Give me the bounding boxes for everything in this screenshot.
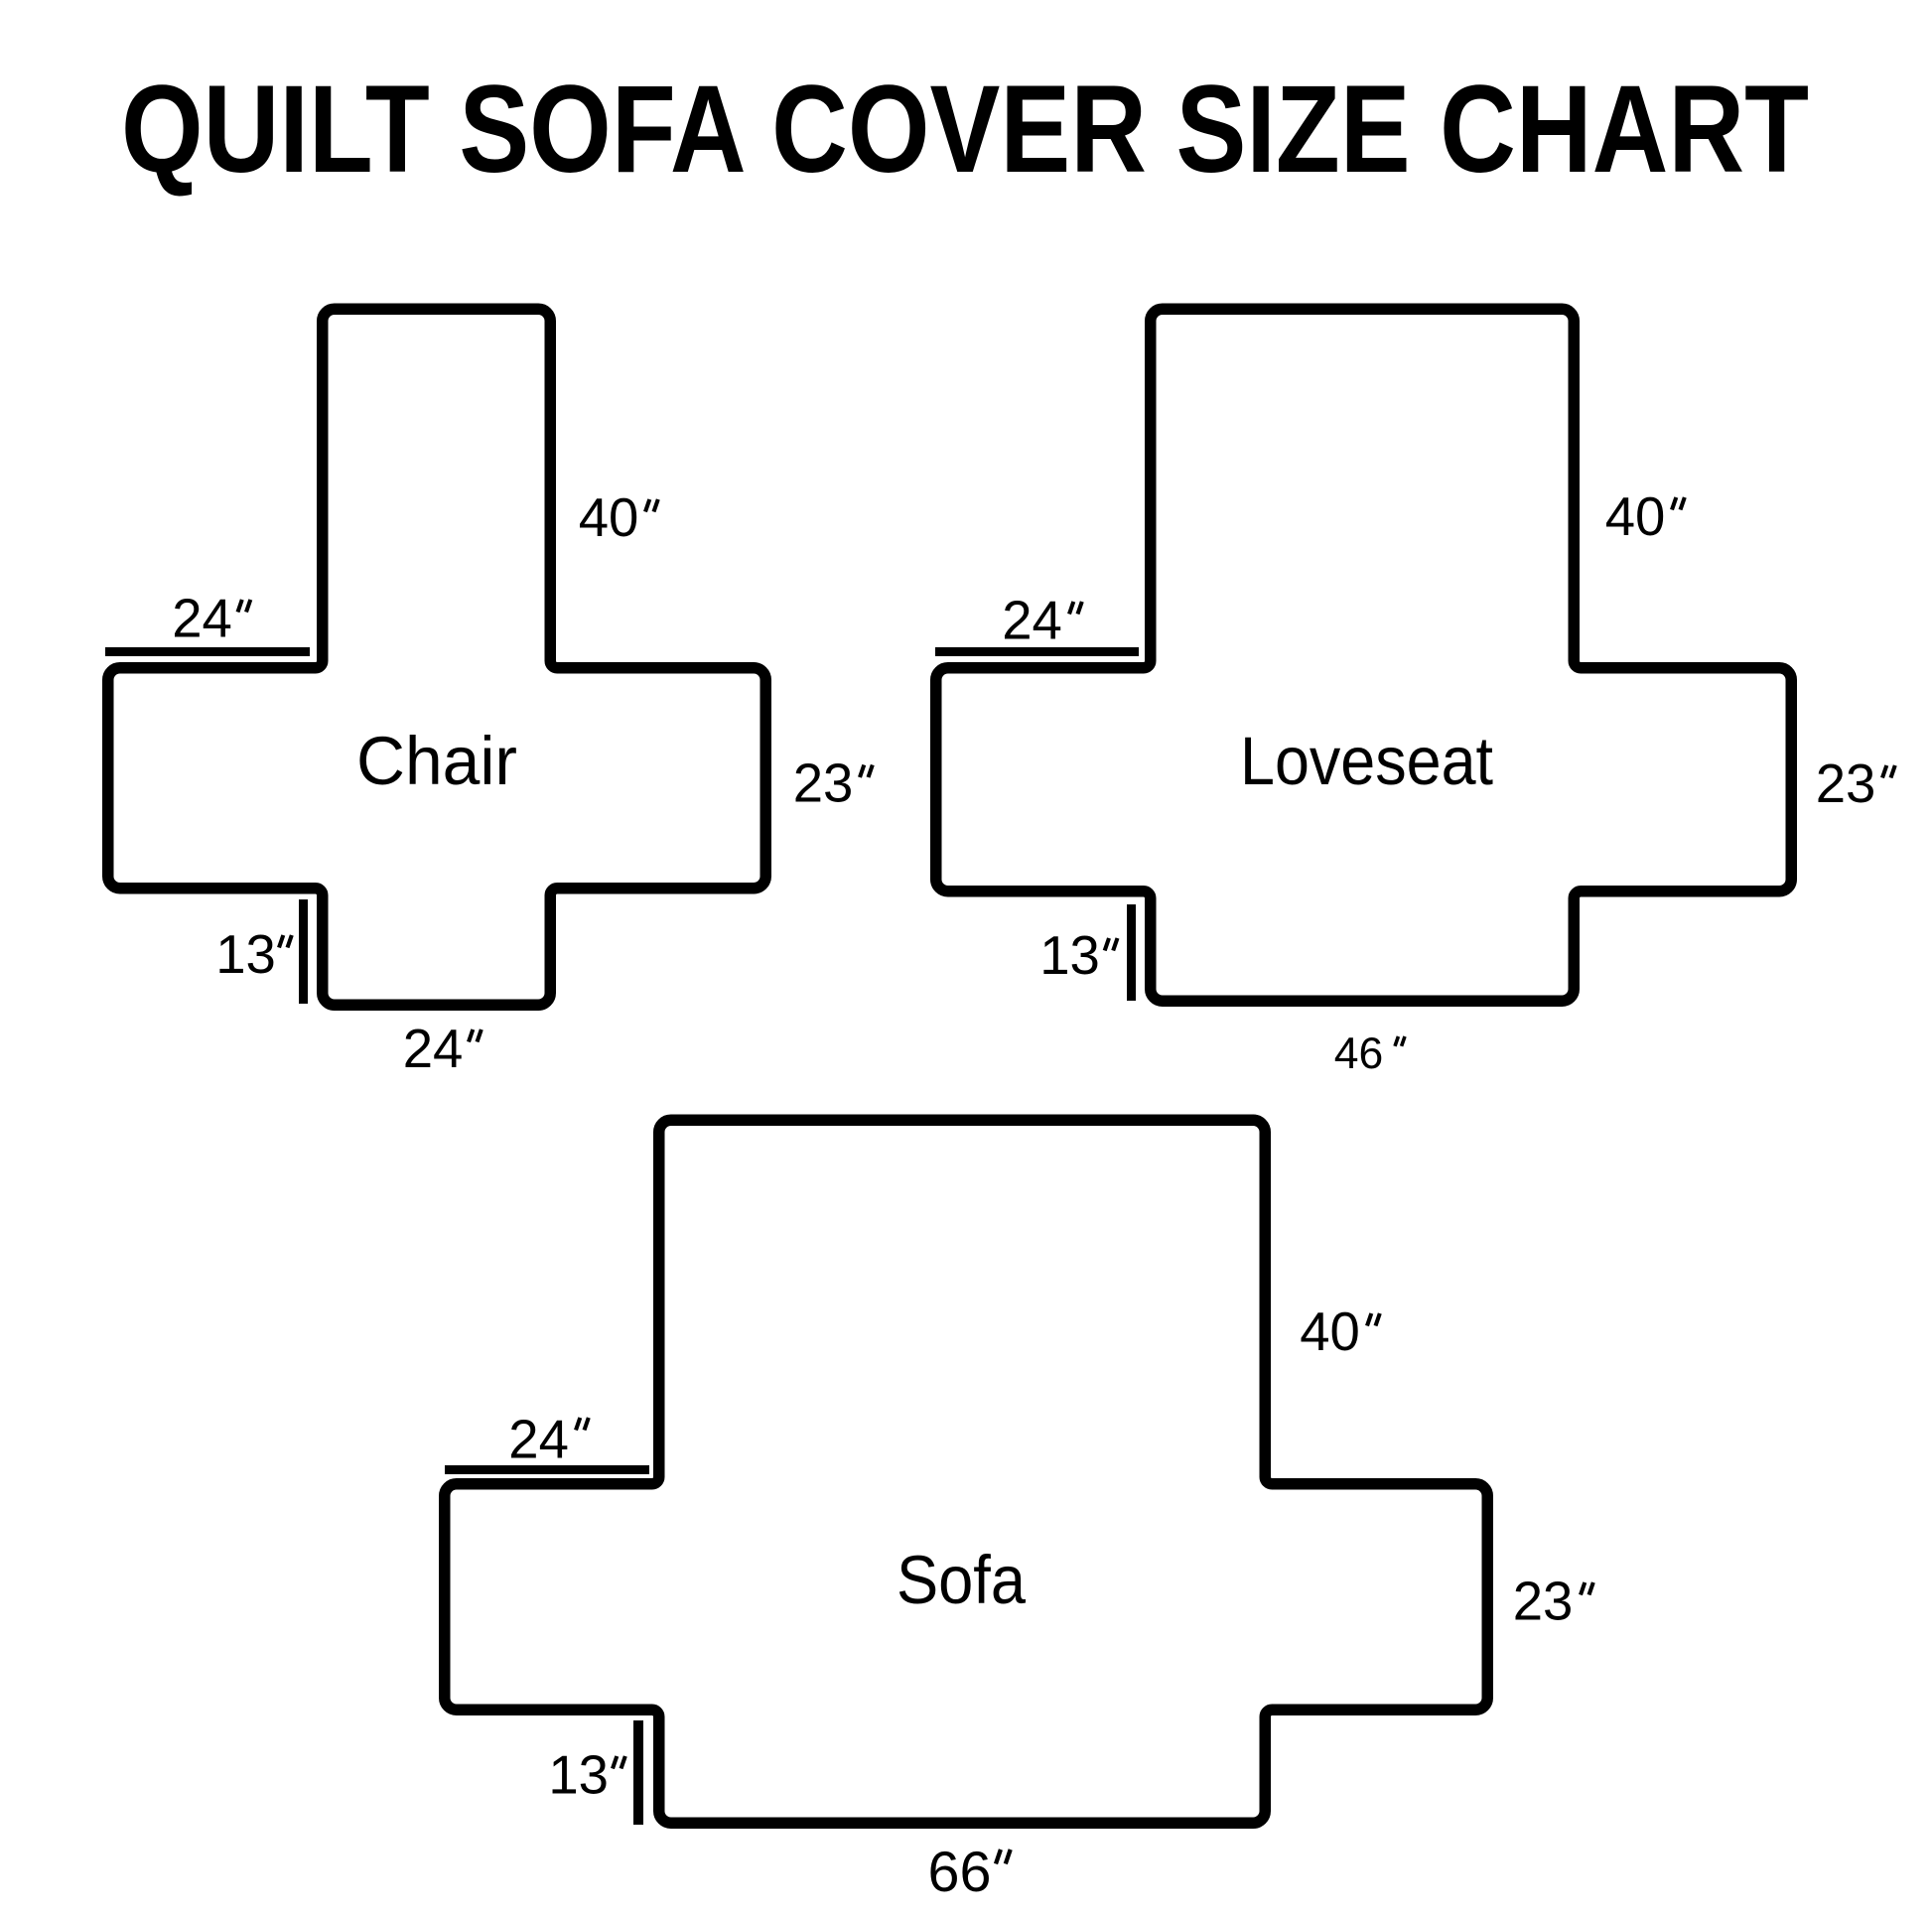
svg-text:46: 46 [1334,1029,1384,1078]
svg-text:24: 24 [172,589,232,649]
svg-text:23: 23 [1513,1571,1574,1631]
svg-text:66: 66 [928,1841,992,1904]
svg-text:Sofa: Sofa [897,1542,1027,1618]
svg-text:24: 24 [508,1409,569,1469]
svg-text:Chair: Chair [356,723,517,799]
svg-text:24: 24 [1002,591,1062,651]
svg-text:13: 13 [215,924,276,985]
svg-text:23: 23 [1816,753,1876,814]
svg-text:23: 23 [793,753,854,814]
svg-text:24: 24 [403,1019,464,1079]
svg-text:40: 40 [1605,486,1666,547]
svg-text:40: 40 [579,487,639,548]
svg-text:QUILT SOFA COVER SIZE CHART: QUILT SOFA COVER SIZE CHART [121,61,1809,199]
svg-text:Loveseat: Loveseat [1240,723,1493,799]
svg-text:13: 13 [1039,925,1100,986]
svg-text:40: 40 [1300,1301,1360,1362]
svg-text:13: 13 [548,1744,609,1805]
